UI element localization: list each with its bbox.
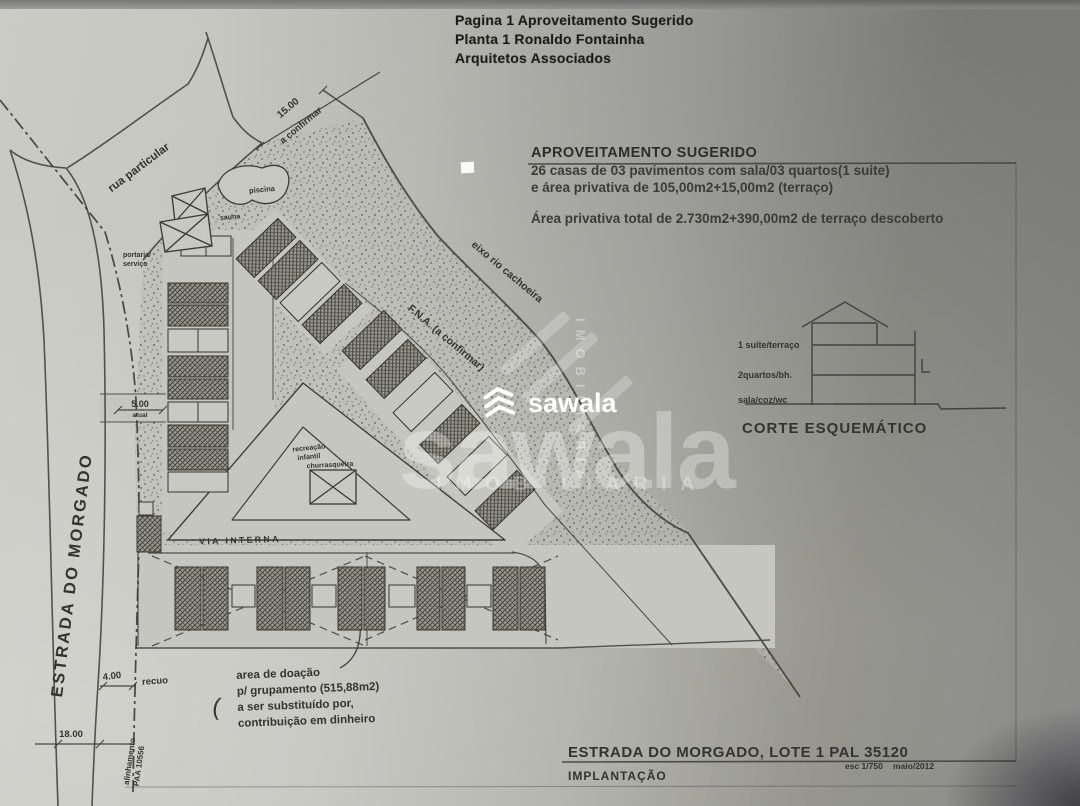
gatehouse-label-1: portaria/ — [123, 252, 151, 259]
scan-shadow-corner — [940, 706, 1080, 806]
titleblock-date: maio/2012 — [893, 761, 934, 771]
alignment-note: alinhamento PAA 10556 — [122, 737, 147, 786]
svg-text:area de doação: area de doação — [236, 667, 320, 682]
titleblock-scale: esc 1/750 — [845, 761, 883, 771]
svg-text:contribuição em dinheiro: contribuição em dinheiro — [238, 713, 376, 730]
section-sketch-drawing — [745, 302, 1006, 409]
dim-4-note: recuo — [142, 675, 169, 688]
suggestion-line: e área privativa de 105,00m2+15,00m2 (te… — [531, 180, 943, 195]
scan-artifact-square — [461, 162, 475, 174]
scanned-site-plan-page: ESTRADA DO MORGADO rua particular 15.00 … — [0, 0, 1080, 806]
suggestion-title: APROVEITAMENTO SUGERIDO — [531, 145, 943, 161]
watermark-logo: sawala — [480, 386, 617, 420]
header-line: Planta 1 Ronaldo Fontainha — [455, 30, 693, 49]
donation-note: area de doação p/ grupamento (515,88m2) … — [236, 665, 381, 730]
dim-4: 4.00 — [102, 670, 122, 683]
property-boundary-dashdot — [0, 100, 139, 792]
road-label-estrada: ESTRADA DO MORGADO — [48, 452, 96, 698]
header-line: Arquitetos Associados — [455, 49, 693, 68]
suggestion-total: Área privativa total de 2.730m2+390,00m2… — [531, 211, 943, 226]
dim-18: 18.00 — [59, 729, 83, 740]
dim-5: 5.00 — [131, 399, 149, 409]
svg-text:a ser substituído por,: a ser substituído por, — [237, 698, 354, 714]
suggestion-line: 26 casas de 03 pavimentos com sala/03 qu… — [531, 163, 943, 178]
titleblock-drawing: IMPLANTAÇÃO — [568, 768, 667, 783]
watermark-brand-word: sawala — [528, 388, 617, 419]
stray-paren-mark: ( — [211, 693, 223, 721]
floor-label-suite: 1 suite/terraço — [738, 340, 800, 350]
floor-label-sala: sala/coz/wc — [738, 395, 788, 405]
gatehouse-label-2: serviço — [123, 261, 148, 268]
section-sketch-title: CORTE ESQUEMÁTICO — [742, 420, 927, 437]
titleblock-project: ESTRADA DO MORGADO, LOTE 1 PAL 35120 — [568, 744, 908, 761]
road-label-rua-particular: rua particular — [106, 141, 172, 195]
bbq-structure — [310, 470, 356, 504]
dim-15: 15.00 — [275, 96, 302, 121]
dim-5-note: atual — [132, 412, 147, 419]
sawala-chevron-icon — [478, 384, 521, 422]
sauna-structures — [160, 188, 212, 252]
suggestion-block: APROVEITAMENTO SUGERIDO 26 casas de 03 p… — [531, 145, 943, 226]
floor-label-quartos: 2quartos/bh. — [738, 370, 792, 380]
svg-text:p/ grupamento (515,88m2): p/ grupamento (515,88m2) — [237, 681, 380, 698]
page-header-note: Pagina 1 Aproveitamento Sugerido Planta … — [455, 11, 693, 68]
header-line: Pagina 1 Aproveitamento Sugerido — [455, 11, 693, 30]
